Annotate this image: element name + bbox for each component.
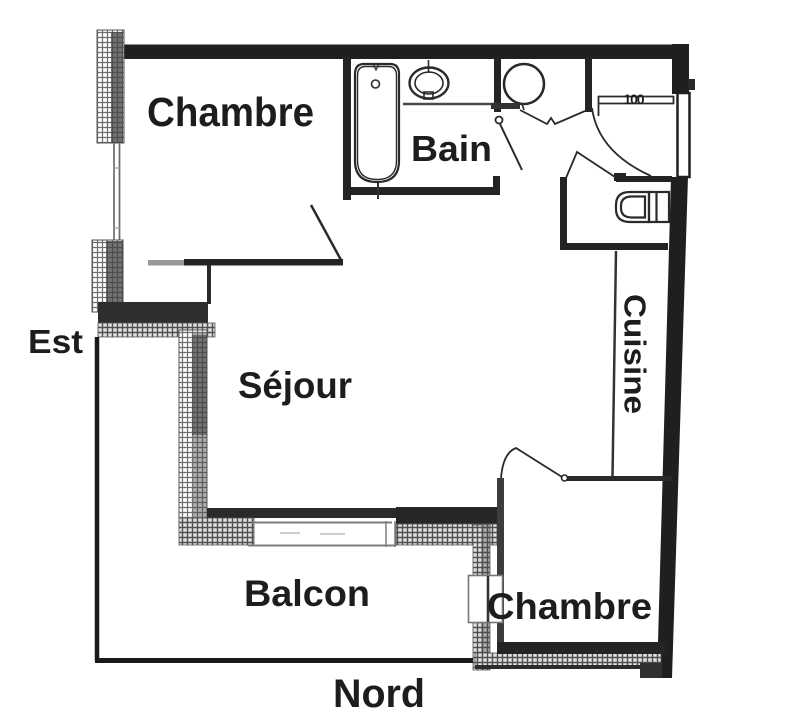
svg-text:Séjour: Séjour xyxy=(238,365,352,406)
svg-text:Chambre: Chambre xyxy=(147,89,314,135)
svg-text:Bain: Bain xyxy=(411,128,492,169)
svg-text:Chambre: Chambre xyxy=(487,586,652,627)
svg-text:Balcon: Balcon xyxy=(244,573,370,614)
svg-text:100: 100 xyxy=(624,91,645,107)
svg-text:Cuisine: Cuisine xyxy=(618,294,653,414)
svg-text:Est: Est xyxy=(28,323,83,360)
svg-text:Nord: Nord xyxy=(333,672,425,716)
